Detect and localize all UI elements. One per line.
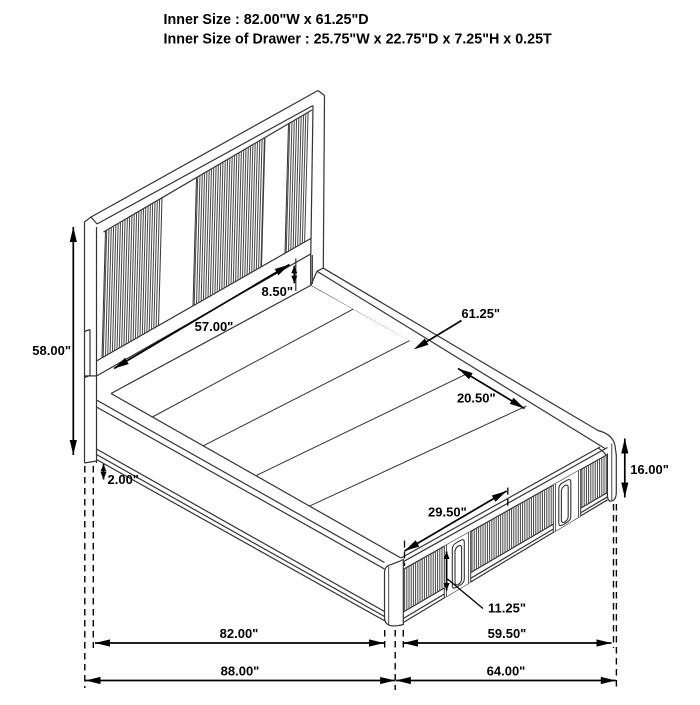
svg-text:59.50": 59.50": [488, 626, 527, 641]
svg-text:82.00": 82.00": [220, 626, 259, 641]
svg-text:Inner Size : 82.00"W x 61.25"D: Inner Size : 82.00"W x 61.25"D: [164, 12, 369, 28]
svg-text:88.00": 88.00": [221, 664, 260, 679]
svg-text:16.00": 16.00": [630, 462, 669, 477]
svg-text:61.25": 61.25": [461, 306, 500, 321]
svg-text:29.50": 29.50": [428, 505, 467, 520]
svg-text:11.25": 11.25": [488, 601, 526, 616]
svg-text:Inner Size of Drawer : 25.75"W: Inner Size of Drawer : 25.75"W x 22.75"D…: [164, 31, 553, 47]
svg-text:8.50": 8.50": [262, 284, 293, 299]
svg-text:2.00": 2.00": [108, 472, 139, 487]
svg-text:20.50": 20.50": [457, 391, 496, 406]
svg-text:57.00": 57.00": [195, 319, 234, 334]
svg-text:64.00": 64.00": [487, 664, 526, 679]
svg-text:58.00": 58.00": [32, 343, 71, 358]
